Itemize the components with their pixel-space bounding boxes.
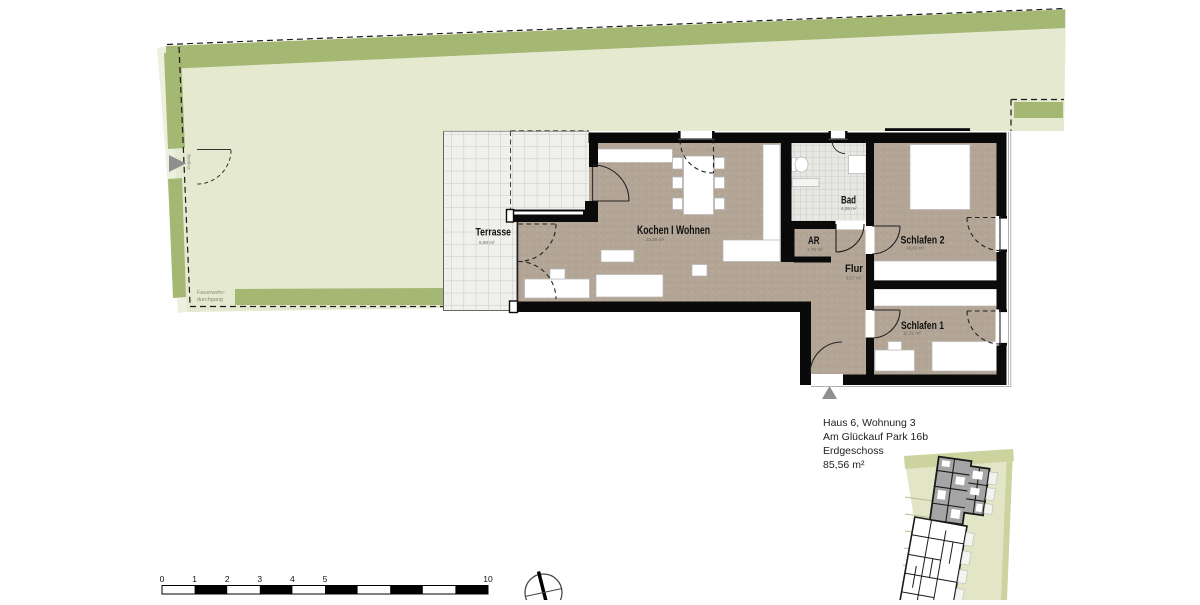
svg-text:8,57 m²: 8,57 m² bbox=[846, 276, 862, 281]
svg-text:0: 0 bbox=[160, 574, 165, 584]
svg-text:85,56 m²: 85,56 m² bbox=[823, 459, 865, 471]
svg-text:10: 10 bbox=[483, 574, 493, 584]
svg-text:5: 5 bbox=[323, 574, 328, 584]
svg-text:1: 1 bbox=[192, 574, 197, 584]
svg-text:AR: AR bbox=[808, 235, 820, 247]
svg-text:durchgang: durchgang bbox=[197, 297, 223, 303]
svg-text:Flur: Flur bbox=[845, 263, 864, 275]
svg-text:Zugang: Zugang bbox=[186, 154, 191, 170]
svg-text:1,78 m²: 1,78 m² bbox=[807, 247, 823, 252]
svg-text:33,08 m²: 33,08 m² bbox=[646, 237, 665, 242]
svg-text:Haus 6, Wohnung 3: Haus 6, Wohnung 3 bbox=[823, 417, 916, 429]
svg-text:Feuerwehr-: Feuerwehr- bbox=[197, 290, 225, 296]
svg-text:11,31 m²: 11,31 m² bbox=[903, 331, 921, 336]
svg-text:Erdgeschoss: Erdgeschoss bbox=[823, 445, 884, 457]
svg-text:Terrasse: Terrasse bbox=[476, 227, 512, 239]
svg-text:9,59 m²: 9,59 m² bbox=[479, 240, 495, 245]
svg-text:16,82 m²: 16,82 m² bbox=[906, 246, 925, 251]
svg-text:Schlafen 2: Schlafen 2 bbox=[901, 234, 945, 246]
svg-text:2: 2 bbox=[225, 574, 230, 584]
svg-text:3: 3 bbox=[257, 574, 262, 584]
svg-text:6,08 m²: 6,08 m² bbox=[841, 206, 857, 211]
svg-text:Bad: Bad bbox=[841, 195, 856, 207]
svg-text:4: 4 bbox=[290, 574, 295, 584]
svg-text:Kochen I Wohnen: Kochen I Wohnen bbox=[637, 225, 710, 237]
svg-text:Am Glückauf Park 16b: Am Glückauf Park 16b bbox=[823, 431, 928, 443]
